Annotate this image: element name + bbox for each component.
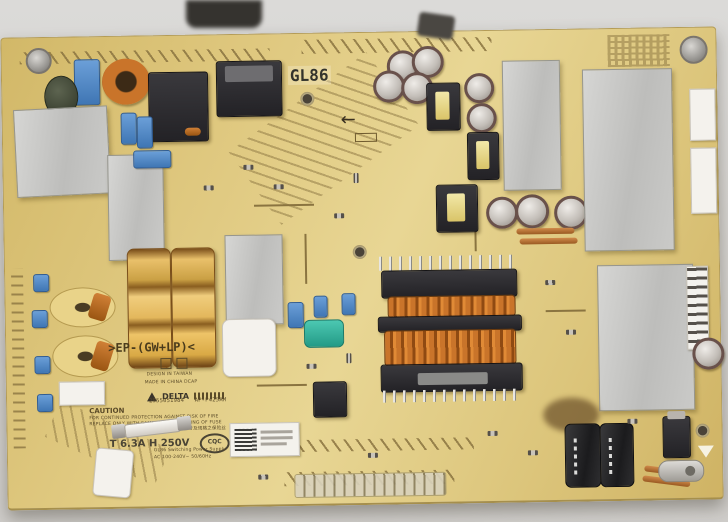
serial-sticker xyxy=(229,422,300,457)
photo-of-power-supply-board: GL86 ← xyxy=(0,0,728,522)
capacitor-print xyxy=(609,434,613,474)
black-capacitor xyxy=(564,423,601,488)
smd-component xyxy=(627,419,637,424)
white-connector xyxy=(690,147,717,213)
blue-film-capacitor xyxy=(137,116,154,148)
smd-component xyxy=(488,431,498,436)
silkscreen-hatch xyxy=(11,268,26,448)
clip-hole xyxy=(685,466,695,476)
fuse-cap xyxy=(176,416,192,432)
sticker-text-bar xyxy=(261,430,293,434)
power-resistor xyxy=(516,228,574,235)
smd-component xyxy=(528,450,538,455)
sticker-text-bar xyxy=(261,442,287,445)
qr-code xyxy=(235,429,257,451)
blue-film-capacitor xyxy=(34,356,50,374)
blue-film-capacitor xyxy=(121,113,138,145)
blue-film-capacitor xyxy=(133,150,171,169)
heatsink xyxy=(502,60,562,191)
small-choke xyxy=(313,381,348,418)
bottom-connector xyxy=(294,472,446,498)
electrolytic-capacitor xyxy=(486,197,518,229)
electrolytic-capacitor xyxy=(466,103,496,133)
silkscreen-line xyxy=(257,384,307,387)
small-transformer xyxy=(467,132,500,180)
board-hole xyxy=(353,245,367,259)
blue-film-capacitor xyxy=(32,310,48,328)
transformer-yellow-core xyxy=(476,141,489,169)
smd-component xyxy=(368,453,378,458)
common-mode-choke xyxy=(216,60,283,117)
part-number-line: 2955051984 AP-P425AM xyxy=(149,397,226,404)
small-transformer xyxy=(426,82,461,131)
electrolytic-capacitor xyxy=(464,73,494,103)
spec-line2: AC 100-240V~ 50/60Hz xyxy=(154,454,211,461)
smd-component xyxy=(306,364,316,369)
ep-marking: >EP-(GW+LP)< xyxy=(108,340,195,355)
brand-row: DELTA xyxy=(147,385,226,396)
transformer-yellow-core xyxy=(447,193,465,221)
copper-winding xyxy=(384,329,517,367)
white-connector xyxy=(92,447,134,498)
white-connector xyxy=(689,88,716,140)
blue-film-capacitor xyxy=(33,274,49,292)
yellow-toroid-inductor xyxy=(49,287,116,328)
core-clip xyxy=(418,372,488,385)
fuse-body xyxy=(124,418,181,439)
board-hole xyxy=(695,424,709,438)
blue-film-capacitor xyxy=(37,394,53,412)
copper-winding xyxy=(87,292,112,322)
smd-component xyxy=(243,165,253,170)
part-number: 2955051984 xyxy=(149,398,184,405)
smd-component xyxy=(354,173,359,183)
metal-clip xyxy=(658,460,704,483)
teal-film-capacitor xyxy=(304,319,344,348)
blue-film-capacitor xyxy=(341,293,355,315)
caution-title: CAUTION xyxy=(89,407,124,416)
mounting-screw xyxy=(25,48,51,74)
sticker-text-bar xyxy=(261,436,293,440)
transformer-pins xyxy=(383,389,517,403)
capacitor-print xyxy=(574,435,578,475)
model-badge: GL86 xyxy=(288,65,331,85)
heatsink xyxy=(13,105,111,198)
heatsink xyxy=(224,234,283,325)
choke-core-top xyxy=(225,65,273,82)
silkscreen-arrow xyxy=(698,445,714,457)
silkscreen-line xyxy=(546,309,586,312)
blue-film-capacitor xyxy=(288,302,304,328)
smd-component xyxy=(346,353,351,363)
silkscreen-box xyxy=(355,133,377,142)
silkscreen-text-rows xyxy=(607,34,669,67)
black-capacitor xyxy=(599,423,634,488)
arrow-left-silkscreen: ← xyxy=(340,109,355,130)
electrolytic-capacitor xyxy=(692,337,724,369)
spec-line1: GL86 Switching Power Supply xyxy=(154,447,226,454)
smd-component xyxy=(204,185,214,190)
smd-component xyxy=(566,330,576,335)
cert-mark-box xyxy=(160,358,171,369)
heatsink xyxy=(107,154,165,261)
smd-component xyxy=(545,280,555,285)
silkscreen-line xyxy=(304,234,307,284)
smd-component xyxy=(274,184,284,189)
copper-winding-glint xyxy=(185,128,201,136)
electrolytic-capacitor xyxy=(515,194,550,229)
design-line: DESIGN IN TAIWAN xyxy=(147,372,193,379)
mounting-screw xyxy=(679,36,707,64)
heatsink-large xyxy=(597,264,695,411)
small-transformer xyxy=(436,184,479,233)
power-resistor xyxy=(520,238,578,245)
white-relay-component xyxy=(222,318,277,377)
board-id: AP-P425AM xyxy=(195,397,227,403)
transistor-tab xyxy=(667,411,685,419)
white-rect-component xyxy=(59,381,105,406)
blue-film-capacitor xyxy=(313,296,327,318)
smd-component xyxy=(258,474,268,479)
heatsink-large xyxy=(582,68,675,251)
transformer-yellow-core xyxy=(435,92,449,120)
copper-toroid-inductor xyxy=(102,58,151,105)
overhanging-component-shadow xyxy=(417,12,456,41)
circuit-board: GL86 ← xyxy=(0,26,723,510)
smd-component xyxy=(334,213,344,218)
to220-transistor xyxy=(662,416,691,458)
overhanging-connector-shadow xyxy=(186,0,262,28)
main-transformer-stack xyxy=(373,252,525,406)
cert-mark-box xyxy=(176,358,187,369)
